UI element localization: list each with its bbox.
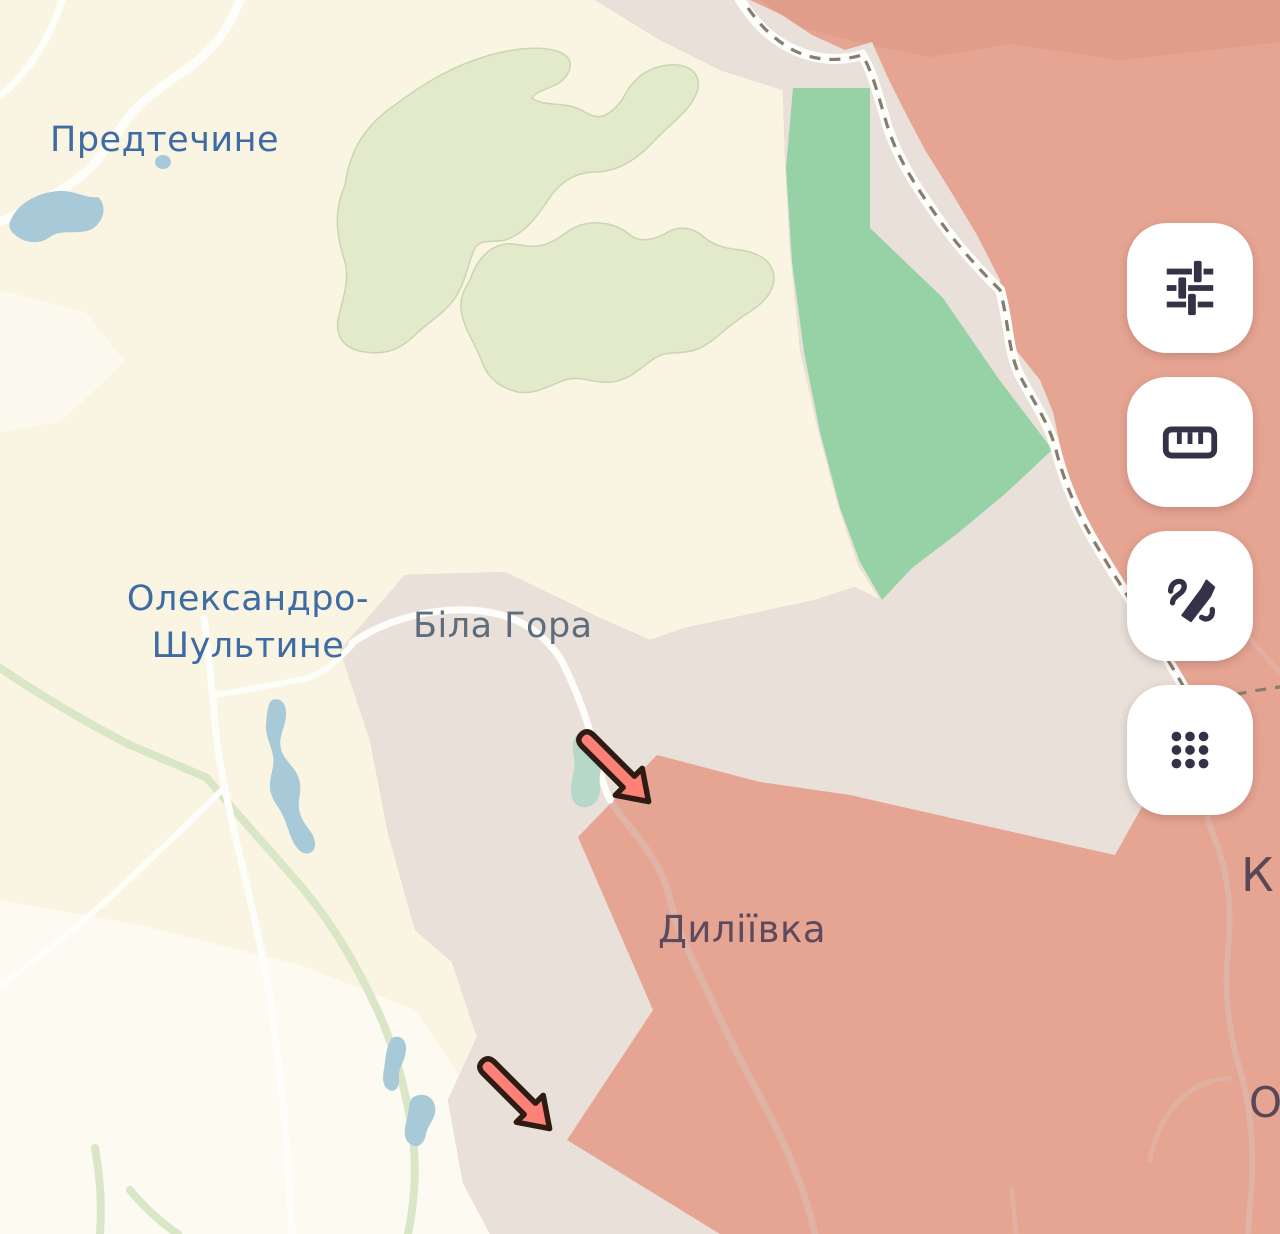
map-filters-button[interactable]: [1127, 223, 1253, 353]
dots-grid-icon: [1159, 719, 1221, 781]
measure-button[interactable]: [1127, 377, 1253, 507]
signature-pen-icon: [1159, 565, 1221, 627]
map-canvas[interactable]: Предтечине Олександро- Шультине Біла Гор…: [0, 0, 1280, 1234]
map-toolbar: [1127, 223, 1253, 815]
draw-button[interactable]: [1127, 531, 1253, 661]
sliders-icon: [1159, 257, 1221, 319]
apps-grid-button[interactable]: [1127, 685, 1253, 815]
ruler-icon: [1159, 411, 1221, 473]
